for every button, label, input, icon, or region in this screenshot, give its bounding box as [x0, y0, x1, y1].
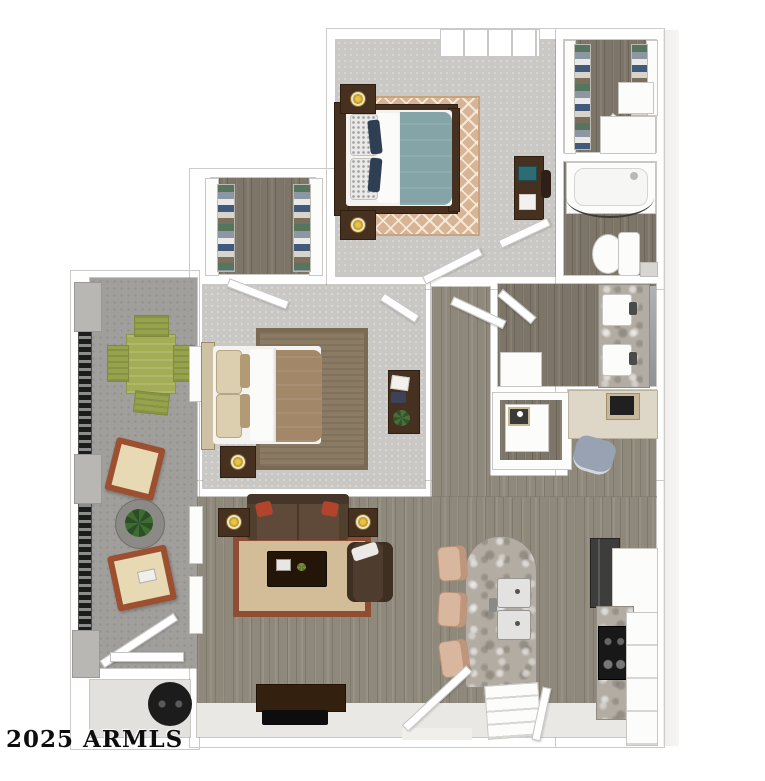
master-closet-cabinet-2 [600, 116, 656, 154]
tv [262, 710, 328, 725]
bedroom2-pillow-1 [216, 350, 242, 394]
master-lamp-bottom [350, 217, 366, 233]
island-sink-1 [497, 578, 531, 608]
bedroom2-lamp [230, 454, 246, 470]
vanity-sink-1 [602, 294, 632, 326]
railing-planter-3 [72, 630, 100, 678]
bedroom2-pillow-2 [216, 394, 242, 438]
master-bed-duvet [400, 112, 452, 205]
balcony-plant [125, 509, 153, 537]
island-sink-drain-2 [515, 621, 520, 626]
dresser-plant [393, 410, 410, 426]
desk-monitor-screen [610, 396, 634, 415]
master-bed-sheet [378, 112, 402, 204]
railing-planter-2 [74, 454, 102, 504]
watermark-text: 2025 ARMLS [6, 726, 183, 753]
vanity-linen-cabinet [500, 352, 542, 387]
master-desk-laptop [518, 166, 537, 181]
vanity-faucet-1 [629, 302, 637, 315]
patio-table [126, 334, 176, 394]
bedroom2-accent-pillow-1 [240, 354, 250, 388]
sofa [247, 494, 349, 540]
right-wall-shadow [663, 30, 679, 746]
fridge-upper-cabinet [612, 548, 658, 614]
dresser-book [391, 392, 406, 403]
end-table-lamp-right [355, 514, 371, 530]
railing-planter-1 [74, 282, 102, 332]
bar-stool-1 [437, 545, 468, 582]
vanity-sink-2 [602, 344, 632, 376]
patio-chair-bottom [133, 390, 170, 416]
toilet-tank [618, 232, 640, 276]
bedroom2-duvet [276, 350, 322, 442]
coffee-table-tray [276, 559, 291, 571]
living-window-2 [189, 576, 203, 634]
master-desk-chair [541, 170, 551, 198]
dresser-papers [390, 375, 410, 391]
laundry-front-floor [490, 476, 568, 497]
bar-stool-2 [437, 591, 468, 627]
floor-plan: 2025 ARMLS [0, 0, 765, 781]
bedroom2-accent-pillow-2 [240, 394, 250, 428]
bath-shelf [640, 262, 658, 277]
sofa-pillow-right [321, 501, 339, 518]
master-closet-clothes-left [574, 44, 591, 150]
bedroom2-closet-shelf-right [309, 178, 323, 276]
master-lamp-top [350, 91, 366, 107]
shower-curtain-rod [566, 178, 654, 218]
island-faucet [489, 598, 497, 612]
coffee-table-plant [297, 563, 306, 571]
living-window-1 [189, 506, 203, 564]
master-window [440, 29, 540, 57]
patio-chair-top [134, 315, 169, 337]
vanity-faucet-2 [629, 352, 637, 365]
island-sink-2 [497, 610, 531, 640]
stair-rail-lower [110, 652, 184, 662]
bedroom2-closet-clothes-right [293, 184, 311, 272]
bedroom2-sheet [250, 348, 276, 442]
master-closet-cabinet-1 [618, 82, 654, 114]
water-heater [148, 682, 192, 726]
washer-knob [517, 411, 523, 417]
kitchen-upper-cabinets [626, 612, 658, 746]
island-sink-drain-1 [515, 589, 520, 594]
patio-chair-left [107, 345, 129, 382]
bedroom2-closet-clothes-left [217, 184, 235, 272]
master-desk-papers [519, 194, 536, 210]
entry-threshold [402, 728, 472, 740]
vanity-mirror [650, 286, 656, 386]
end-table-lamp-left [226, 514, 242, 530]
tv-console [256, 684, 346, 712]
